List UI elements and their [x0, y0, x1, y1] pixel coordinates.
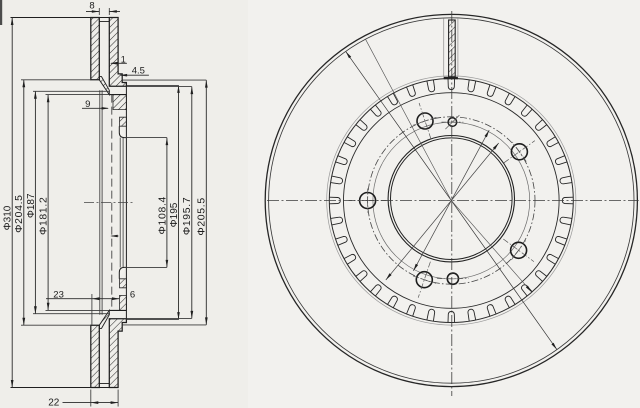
svg-text:6: 6: [130, 290, 135, 301]
svg-text:Φ310: Φ310: [3, 205, 14, 230]
svg-text:Φ195.7: Φ195.7: [182, 197, 193, 236]
svg-text:Φ108.4: Φ108.4: [157, 196, 168, 235]
svg-text:Φ204.5: Φ204.5: [14, 194, 25, 233]
svg-text:Φ181.2: Φ181.2: [39, 197, 50, 236]
svg-text:9: 9: [85, 99, 90, 110]
svg-text:Φ195: Φ195: [169, 202, 180, 227]
svg-text:1: 1: [121, 54, 126, 64]
svg-text:8: 8: [89, 0, 94, 11]
svg-text:4.5: 4.5: [132, 66, 145, 77]
svg-text:Φ205.5: Φ205.5: [197, 197, 208, 236]
svg-text:22: 22: [48, 398, 60, 408]
svg-text:Φ187: Φ187: [26, 193, 37, 218]
svg-text:23: 23: [53, 289, 64, 300]
